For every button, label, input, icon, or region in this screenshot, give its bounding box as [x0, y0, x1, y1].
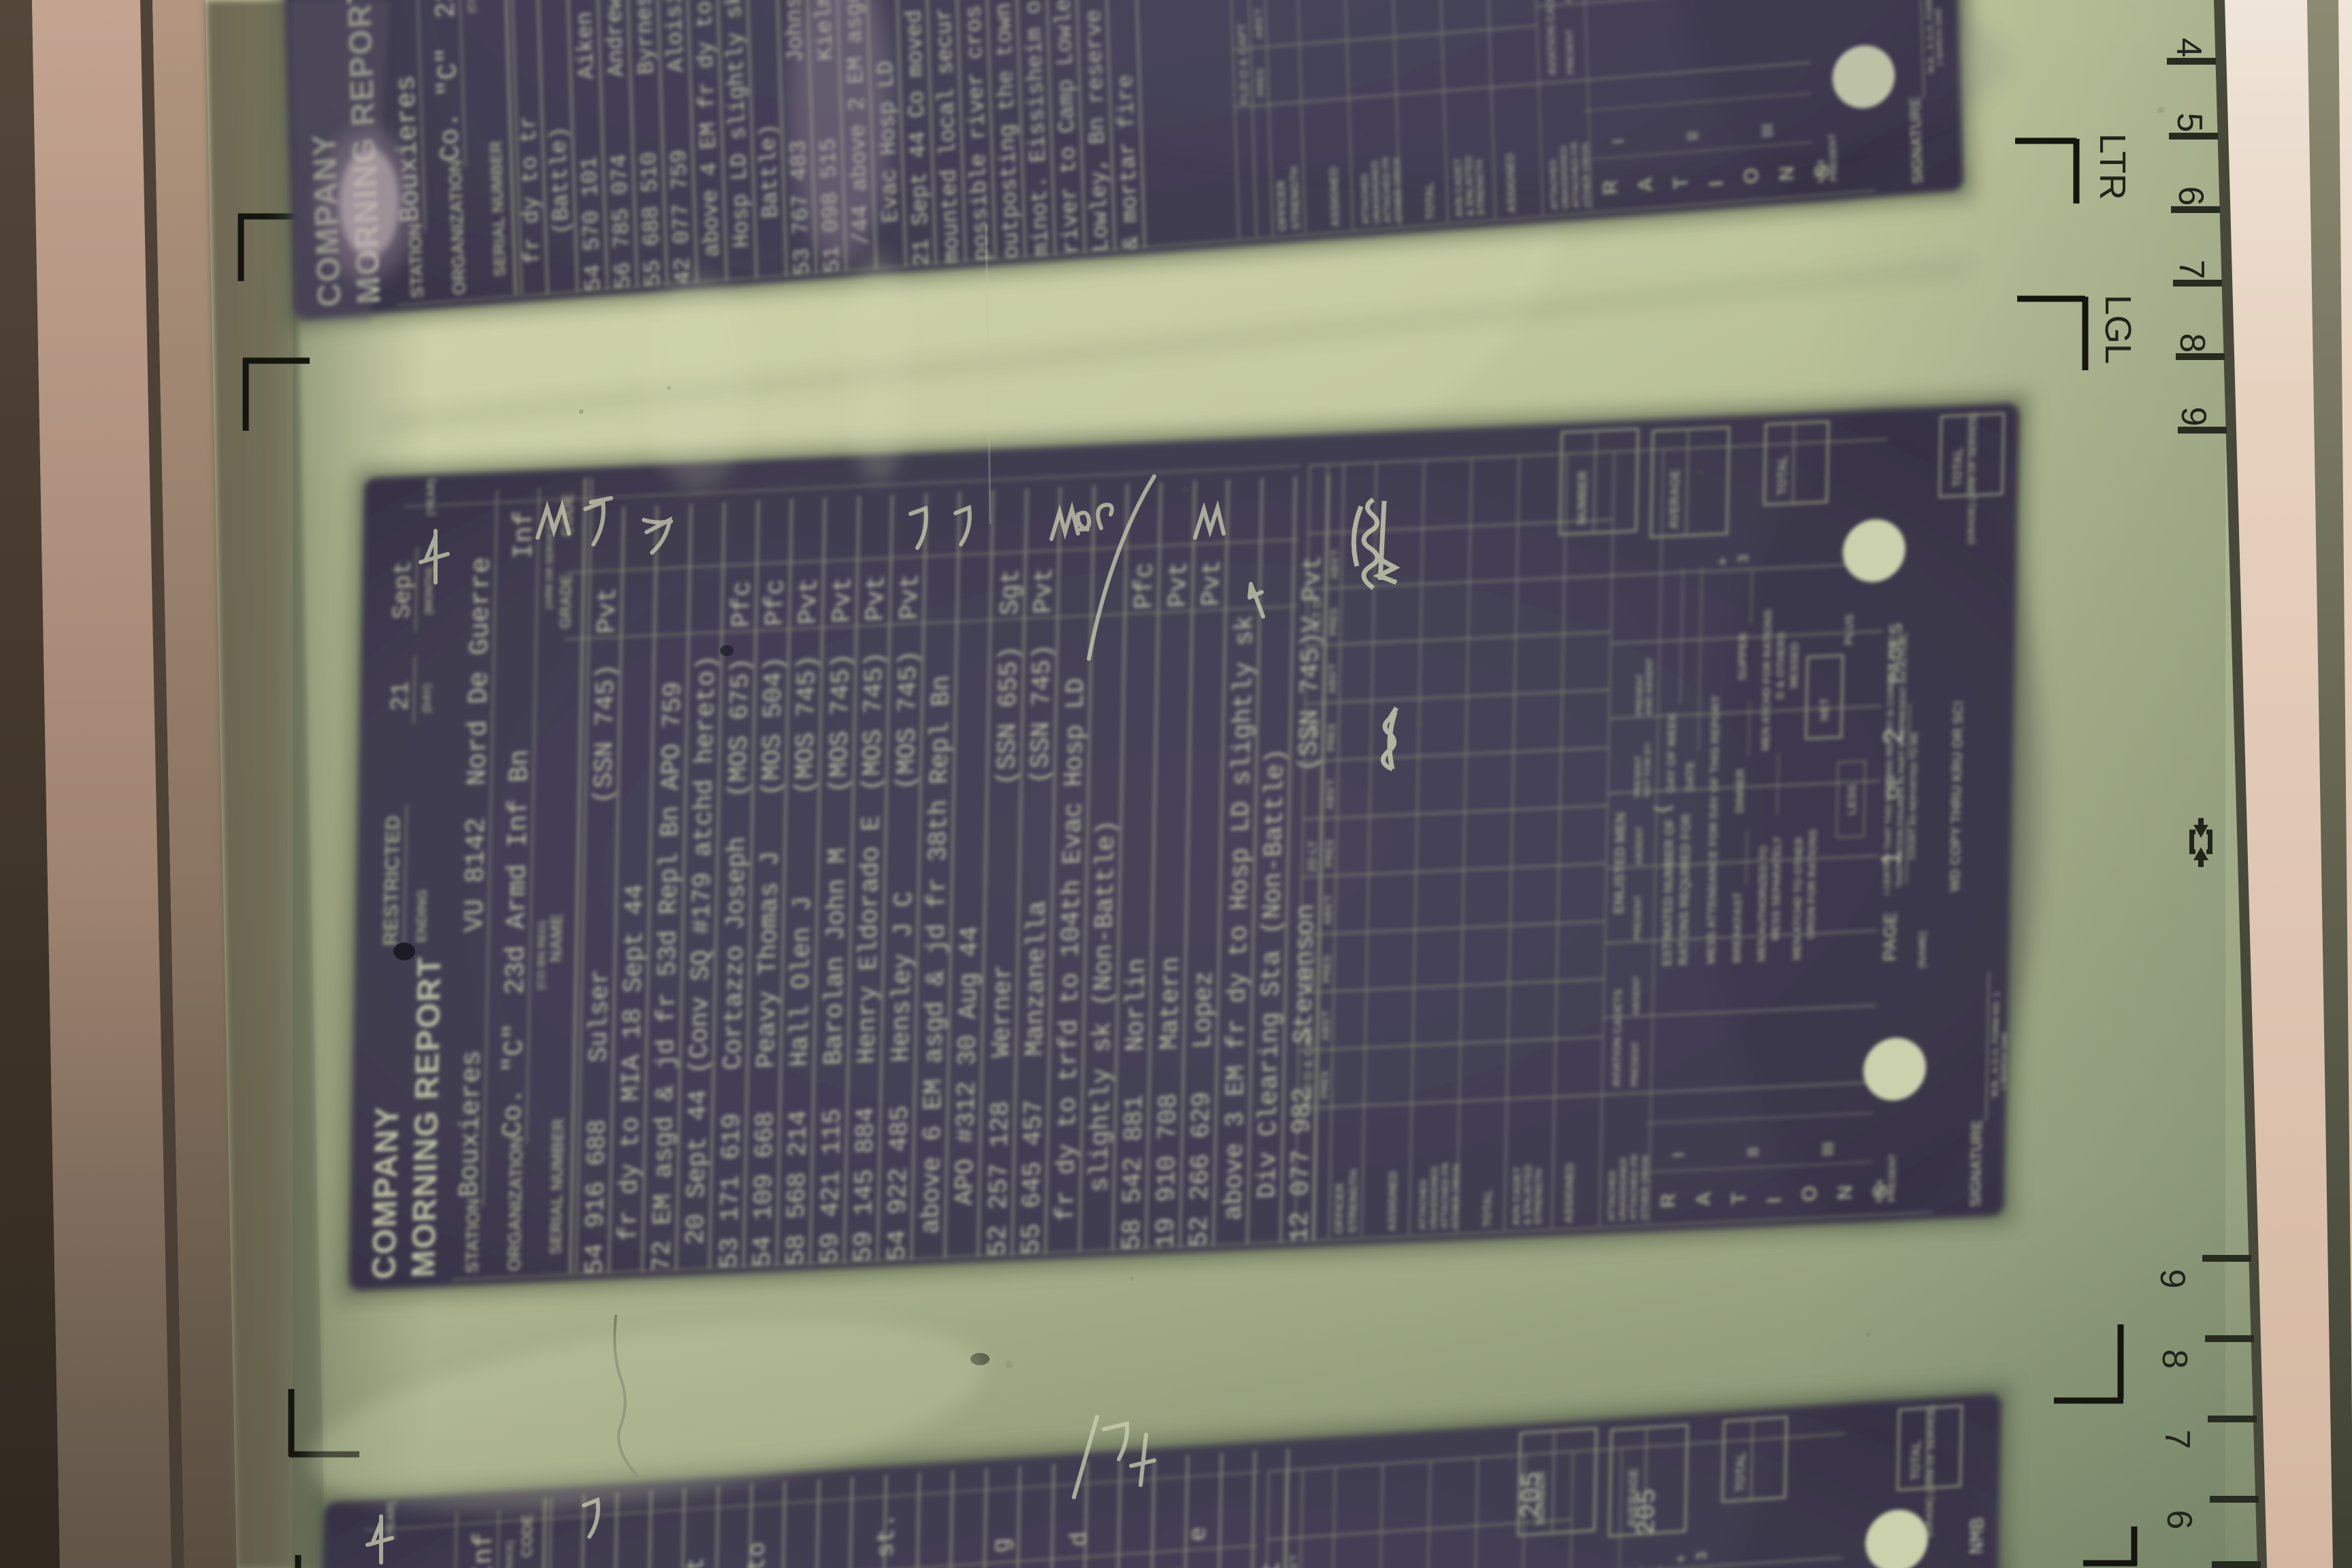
svg-text:9: 9	[2153, 1269, 2192, 1289]
svg-text:ASSIGNED: ASSIGNED	[1327, 166, 1342, 227]
svg-text:A: A	[1693, 1191, 1715, 1207]
svg-text:5: 5	[2170, 113, 2209, 133]
svg-text:Pvt: Pvt	[1164, 560, 1194, 608]
svg-text:DINNER: DINNER	[1733, 768, 1747, 813]
svg-text:PRES: PRES	[1319, 1071, 1331, 1099]
svg-text:st.: st.	[872, 1513, 901, 1558]
svg-text:MEN: MEN	[1874, 1179, 1886, 1203]
svg-text:(SSN 745): (SSN 745)	[589, 664, 621, 804]
svg-text:ATTACHED FR: ATTACHED FR	[1439, 1162, 1451, 1229]
svg-text:II: II	[1744, 1147, 1763, 1157]
svg-text:Pfc: Pfc	[761, 578, 791, 626]
svg-text:1 MARCH 1945: 1 MARCH 1945	[1999, 1032, 2010, 1090]
svg-text:AVIATION CADETS: AVIATION CADETS	[1611, 989, 1624, 1088]
svg-text:Pvt: Pvt	[828, 576, 858, 623]
svg-text:205: 205	[1517, 1471, 1547, 1519]
svg-text:DAY OF WEEK: DAY OF WEEK	[1664, 711, 1678, 793]
svg-text:NOT FOR DY: NOT FOR DY	[1641, 742, 1653, 797]
svg-text:MEN AUTHORIZED TO: MEN AUTHORIZED TO	[1756, 845, 1769, 962]
svg-text:42 077 759: 42 077 759	[667, 148, 696, 285]
svg-text:PRESENT: PRESENT	[1629, 1041, 1640, 1086]
svg-text:54 570 101: 54 570 101	[577, 155, 606, 292]
svg-text:55 688 510: 55 688 510	[637, 151, 666, 288]
svg-text:N: N	[1833, 1185, 1856, 1200]
svg-text:54 916 688: 54 916 688	[581, 1119, 612, 1275]
svg-text:NUMBER: NUMBER	[1575, 470, 1589, 525]
svg-text:Pvt: Pvt	[895, 572, 925, 620]
svg-text:Hensley J C: Hensley J C	[887, 891, 919, 1063]
svg-text:Bouxieres: Bouxieres	[455, 1049, 488, 1198]
svg-text:6: 6	[2171, 186, 2210, 206]
svg-text:(NAME): (NAME)	[1916, 931, 1929, 968]
svg-text:ASSIGNED: ASSIGNED	[1563, 1162, 1577, 1224]
svg-text:O: O	[1799, 1185, 1821, 1202]
svg-text:I: I	[1669, 1152, 1688, 1158]
svg-text:(SSN 655): (SSN 655)	[993, 645, 1025, 786]
svg-text:21: 21	[387, 681, 415, 711]
svg-text:Sulser: Sulser	[585, 968, 616, 1063]
svg-text:t: t	[682, 1556, 710, 1568]
svg-text:LGL: LGL	[2097, 295, 2138, 364]
svg-text:Nord De Guerre: Nord De Guerre	[463, 556, 497, 786]
svg-text:Aiken: Aiken	[572, 11, 600, 80]
svg-text:7: 7	[2172, 260, 2211, 280]
svg-text:STATION: STATION	[461, 1198, 483, 1274]
svg-text:FLT O: FLT O	[1310, 599, 1324, 632]
svg-text:PRES: PRES	[1323, 839, 1335, 868]
svg-text:8: 8	[2155, 1350, 2194, 1369]
svg-text:TOTAL: TOTAL	[1481, 1189, 1494, 1227]
svg-text:(MOS 675): (MOS 675)	[724, 657, 756, 798]
svg-text:(MOS 504): (MOS 504)	[757, 655, 789, 796]
svg-text:ENLISTED MEN: ENLISTED MEN	[1612, 812, 1629, 914]
svg-text:(MOS 745): (MOS 745)	[892, 649, 924, 790]
svg-text:Pvt: Pvt	[794, 577, 824, 625]
svg-text:STRENGTH: STRENGTH	[1346, 1169, 1360, 1233]
svg-text:SERIAL NUMBER: SERIAL NUMBER	[546, 1118, 568, 1255]
svg-text:ENDING: ENDING	[414, 889, 430, 943]
svg-text:7: 7	[2157, 1430, 2197, 1450]
svg-text:AND ABSENT: AND ABSENT	[1644, 657, 1655, 715]
svg-text:ABS'T: ABS'T	[1288, 1554, 1300, 1568]
svg-text:MESSED: MESSED	[1788, 642, 1801, 688]
svg-text:LTR: LTR	[2092, 133, 2133, 200]
svg-text:Battle): Battle)	[755, 123, 783, 219]
svg-text:Matern: Matern	[1156, 956, 1187, 1051]
svg-text:R: R	[1599, 179, 1622, 196]
svg-text:ORGANIZATION: ORGANIZATION	[444, 159, 469, 295]
svg-text:ASSIGNED: ASSIGNED	[1386, 1171, 1400, 1232]
svg-text:Andrews: Andrews	[602, 0, 630, 78]
svg-text:Pfc: Pfc	[1130, 561, 1160, 609]
svg-text:54 922 485: 54 922 485	[883, 1105, 915, 1261]
svg-text:O: O	[1740, 167, 1763, 184]
svg-text:ABS'T: ABS'T	[1324, 779, 1337, 809]
svg-text:PRESENT: PRESENT	[1631, 894, 1643, 940]
svg-text:UNASSIGNED: UNASSIGNED	[1616, 1157, 1629, 1221]
svg-text:I: I	[1763, 1197, 1786, 1204]
svg-text:SUPPER: SUPPER	[1735, 632, 1749, 681]
svg-text:(CO BN REG): (CO BN REG)	[464, 0, 478, 14]
svg-text:III: III	[1819, 1142, 1837, 1156]
svg-text:Inf: Inf	[509, 509, 540, 559]
svg-text:8: 8	[2172, 333, 2212, 353]
svg-text:TOTAL: TOTAL	[1950, 447, 1965, 487]
svg-text:1ST LT: 1ST LT	[1303, 949, 1317, 988]
svg-text:ABS'T: ABS'T	[1320, 1010, 1332, 1041]
svg-text:9: 9	[2174, 407, 2213, 427]
svg-text:58 568 214: 58 568 214	[782, 1109, 814, 1266]
svg-text:Sgt: Sgt	[996, 568, 1026, 615]
svg-text:TOTAL: TOTAL	[1909, 1440, 1923, 1481]
svg-text:PLUS: PLUS	[1842, 614, 1856, 645]
svg-text:OTHER ORGN: OTHER ORGN	[1450, 1164, 1462, 1229]
svg-text:ABSENT: ABSENT	[1633, 826, 1644, 866]
svg-text:Inf: Inf	[469, 1531, 500, 1568]
svg-text:(MOS 745): (MOS 745)	[791, 654, 823, 795]
svg-text:3: 3	[1735, 554, 1752, 563]
svg-text:OFFICER: OFFICER	[1275, 180, 1289, 231]
svg-text:AVERAGE: AVERAGE	[1667, 469, 1682, 529]
svg-text:R: R	[1657, 1192, 1680, 1208]
svg-text:N: N	[1776, 165, 1799, 182]
svg-text:GRADE: GRADE	[557, 574, 575, 630]
svg-text:52 266 629: 52 266 629	[1185, 1091, 1217, 1247]
svg-text:PRES: PRES	[1321, 955, 1333, 983]
svg-text:NAME: NAME	[547, 913, 566, 962]
svg-text:59 421 115: 59 421 115	[815, 1108, 847, 1264]
svg-text:(Battle): (Battle)	[546, 126, 575, 235]
svg-text:d: d	[1066, 1531, 1094, 1547]
svg-text:STRENGTH: STRENGTH	[1288, 166, 1303, 231]
svg-text:53 171 619: 53 171 619	[715, 1113, 747, 1269]
svg-text:MEN: MEN	[1815, 159, 1827, 183]
svg-text:+: +	[1672, 1554, 1689, 1564]
svg-text:DATE: DATE	[1683, 761, 1697, 792]
svg-text:Pvt: Pvt	[1029, 566, 1059, 614]
svg-text:ORGANIZATION: ORGANIZATION	[504, 1135, 527, 1271]
svg-text:58 542 881: 58 542 881	[1117, 1094, 1149, 1251]
svg-text:Hall Olen J: Hall Olen J	[785, 895, 818, 1067]
svg-text:RESTRICTED: RESTRICTED	[380, 815, 405, 946]
svg-text:PRES: PRES	[1328, 608, 1340, 636]
svg-text:{: {	[1651, 804, 1673, 813]
svg-text:ABS'T: ABS'T	[1322, 894, 1335, 925]
svg-text:PRES: PRES	[1326, 723, 1338, 752]
svg-text:D & OTHERS: D & OTHERS	[1775, 632, 1788, 700]
svg-text:52 257 128: 52 257 128	[983, 1100, 1015, 1257]
svg-text:UNASSIGNED: UNASSIGNED	[1428, 1166, 1440, 1230]
svg-text:Pvt: Pvt	[1298, 554, 1328, 602]
svg-text:BREAKFAST: BREAKFAST	[1730, 892, 1744, 963]
svg-text:3: 3	[1693, 1551, 1710, 1561]
svg-text:ATTACHED: ATTACHED	[1417, 1179, 1428, 1230]
svg-text:Norlin: Norlin	[1122, 958, 1153, 1052]
svg-text:Pvt: Pvt	[862, 574, 892, 621]
svg-text:Manzanella: Manzanella	[1021, 900, 1053, 1056]
svg-text:ORGN FOR RATIONS: ORGN FOR RATIONS	[1806, 829, 1819, 940]
svg-text:PRESENT: PRESENT	[1886, 1154, 1898, 1203]
svg-text:+: +	[1714, 557, 1731, 566]
svg-text:(DAY): (DAY)	[421, 683, 434, 713]
svg-text:Pvt: Pvt	[1197, 559, 1227, 606]
svg-text:(YEAR): (YEAR)	[425, 478, 438, 516]
svg-text:MEN ATCHD TO OTHER: MEN ATCHD TO OTHER	[1791, 836, 1805, 960]
svg-text:(ARM OR SERVICE): (ARM OR SERVICE)	[502, 1540, 515, 1568]
svg-text:LESS: LESS	[1845, 784, 1859, 815]
svg-text:T: T	[1728, 1192, 1750, 1205]
svg-text:55 645 457: 55 645 457	[1017, 1098, 1049, 1255]
svg-text:Werner: Werner	[987, 964, 1019, 1058]
svg-text:SIGNATURE: SIGNATURE	[1967, 1120, 1985, 1207]
svg-text:4: 4	[2169, 38, 2208, 58]
svg-text:Co. "C": Co. "C"	[498, 1022, 531, 1138]
svg-text:MESS SEPARATELY: MESS SEPARATELY	[1770, 836, 1784, 941]
svg-text:59 145 884: 59 145 884	[849, 1107, 881, 1263]
svg-text:NMB: NMB	[1966, 1517, 1990, 1555]
svg-text:TOTAL: TOTAL	[1423, 182, 1437, 220]
svg-text:Pfc: Pfc	[728, 580, 757, 627]
svg-text:56 785 074: 56 785 074	[607, 153, 636, 290]
svg-text:2D LT: 2D LT	[1305, 840, 1319, 872]
svg-text:NET: NET	[1818, 697, 1831, 721]
svg-text:TOTAL: TOTAL	[1733, 1452, 1748, 1492]
svg-text:205: 205	[1632, 1488, 1662, 1536]
svg-text:19 910 708: 19 910 708	[1151, 1092, 1183, 1249]
svg-text:T: T	[1669, 176, 1692, 190]
svg-text:A: A	[1634, 176, 1657, 193]
svg-text:Lopez: Lopez	[1189, 970, 1220, 1049]
svg-text:Aloisio: Aloisio	[661, 0, 689, 73]
svg-text:(MOS 745): (MOS 745)	[825, 653, 857, 794]
svg-text:ABS'T: ABS'T	[1328, 549, 1341, 579]
svg-text:ESTIMATED NUMBER OF: ESTIMATED NUMBER OF	[1661, 818, 1677, 966]
svg-text:ABS'T: ABS'T	[1326, 663, 1339, 693]
svg-text:ATTACHED: ATTACHED	[1605, 1170, 1617, 1222]
svg-text:COMPANY: COMPANY	[366, 1105, 406, 1280]
svg-text:6: 6	[2159, 1510, 2199, 1530]
svg-text:54 109 668: 54 109 668	[749, 1111, 781, 1267]
svg-text:g: g	[987, 1537, 1015, 1554]
svg-text:MORNING REPORT: MORNING REPORT	[406, 955, 448, 1279]
svg-text:e: e	[1185, 1526, 1213, 1542]
svg-text:(SSN 745): (SSN 745)	[1026, 643, 1058, 784]
svg-text:Sept: Sept	[389, 559, 418, 619]
svg-text:WO: WO	[1308, 719, 1322, 739]
svg-text:PAGE: PAGE	[1879, 912, 1900, 962]
svg-text:OFFICER: OFFICER	[1333, 1183, 1346, 1234]
svg-text:(MOS 745): (MOS 745)	[858, 651, 890, 792]
svg-text:ABSENT: ABSENT	[1630, 975, 1641, 1015]
svg-text:Pvt: Pvt	[593, 586, 623, 634]
svg-text:ATTACHED FR: ATTACHED FR	[1627, 1154, 1639, 1220]
svg-text:to: to	[743, 1541, 772, 1568]
svg-text:VU 8142: VU 8142	[460, 817, 493, 932]
svg-text:Byrnes: Byrnes	[632, 0, 659, 76]
svg-text:FLD O & CAPT: FLD O & CAPT	[1301, 1024, 1316, 1106]
svg-text:STRENGTH: STRENGTH	[1533, 1169, 1546, 1225]
svg-text:Co. "C": Co. "C"	[433, 46, 467, 162]
svg-text:23d Armd Inf Bn: 23d Armd Inf Bn	[501, 749, 536, 995]
svg-text:(YEAR): (YEAR)	[385, 1501, 397, 1539]
svg-text:TOTAL: TOTAL	[1776, 455, 1790, 495]
